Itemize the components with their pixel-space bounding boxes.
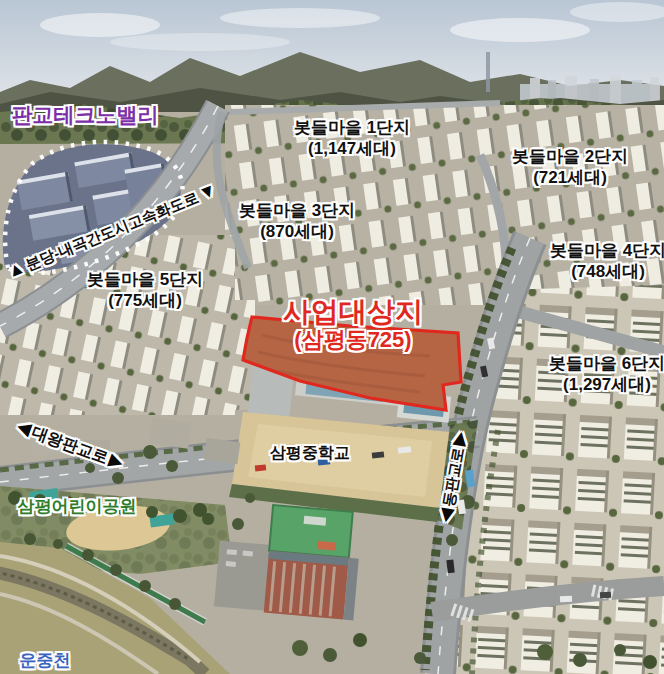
complex-label-botdeul-3: 봇들마을 3단지 (870세대) <box>239 200 355 242</box>
aerial-map: 판교테크노밸리 ▲분당-내곡간도시고속화도로▼ 봇들마을 1단지 (1,147세… <box>0 0 664 674</box>
project-site-title: 사업대상지 <box>283 297 423 327</box>
technovalley-label: 판교테크노밸리 <box>12 102 159 127</box>
complex-label-botdeul-1: 봇들마을 1단지 (1,147세대) <box>294 117 410 159</box>
arrow-up-icon: ▶ <box>448 430 470 447</box>
complex-label-botdeul-4: 봇들마을 4단지 (748세대) <box>550 240 664 282</box>
complex-name: 봇들마을 2단지 <box>512 146 628 167</box>
complex-name: 봇들마을 3단지 <box>239 200 355 221</box>
complex-households: (775세대) <box>87 290 203 311</box>
complex-label-botdeul-5: 봇들마을 5단지 (775세대) <box>87 269 203 311</box>
complex-name: 봇들마을 5단지 <box>87 269 203 290</box>
complex-name: 봇들마을 6단지 <box>549 353 664 374</box>
complex-households: (1,147세대) <box>294 138 410 159</box>
project-site-label: 사업대상지 (삼평동725) <box>283 297 423 352</box>
school-label: 삼평중학교 <box>270 443 350 462</box>
complex-households: (870세대) <box>239 221 355 242</box>
project-site-subtitle: (삼평동725) <box>283 327 423 352</box>
complex-households: (748세대) <box>550 261 664 282</box>
park-label: 삼평어린이공원 <box>18 497 137 517</box>
complex-name: 봇들마을 1단지 <box>294 117 410 138</box>
complex-name: 봇들마을 4단지 <box>550 240 664 261</box>
complex-households: (1,297세대) <box>549 374 664 395</box>
complex-label-botdeul-6: 봇들마을 6단지 (1,297세대) <box>549 353 664 395</box>
stream-label: 운중천 <box>20 651 71 671</box>
complex-label-botdeul-2: 봇들마을 2단지 (721세대) <box>512 146 628 188</box>
arrow-down-icon: ◀ <box>434 507 456 524</box>
complex-households: (721세대) <box>512 167 628 188</box>
